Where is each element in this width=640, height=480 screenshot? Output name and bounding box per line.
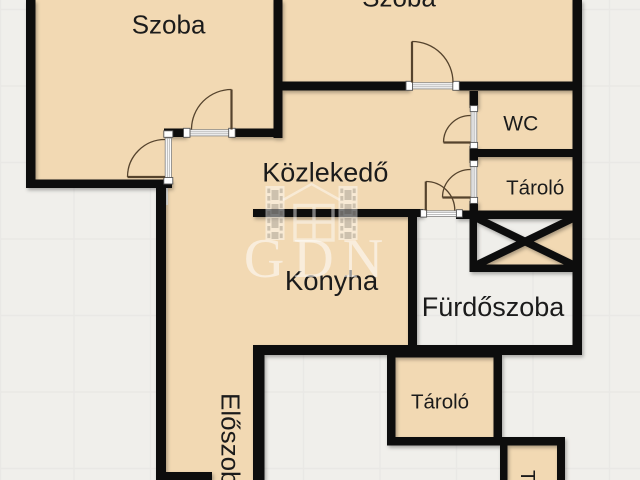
svg-text:Közlekedő: Közlekedő	[262, 158, 388, 188]
svg-text:Tároló: Tároló	[516, 470, 538, 480]
svg-text:WC: WC	[503, 113, 538, 136]
svg-text:Fürdőszoba: Fürdőszoba	[422, 292, 566, 322]
svg-text:GDN: GDN	[244, 228, 392, 290]
svg-text:Tároló: Tároló	[411, 391, 469, 414]
svg-text:Szoba: Szoba	[132, 10, 206, 40]
svg-text:Előszoba: Előszoba	[216, 393, 246, 480]
svg-text:Szoba: Szoba	[362, 0, 436, 13]
svg-text:Tároló: Tároló	[506, 177, 564, 200]
